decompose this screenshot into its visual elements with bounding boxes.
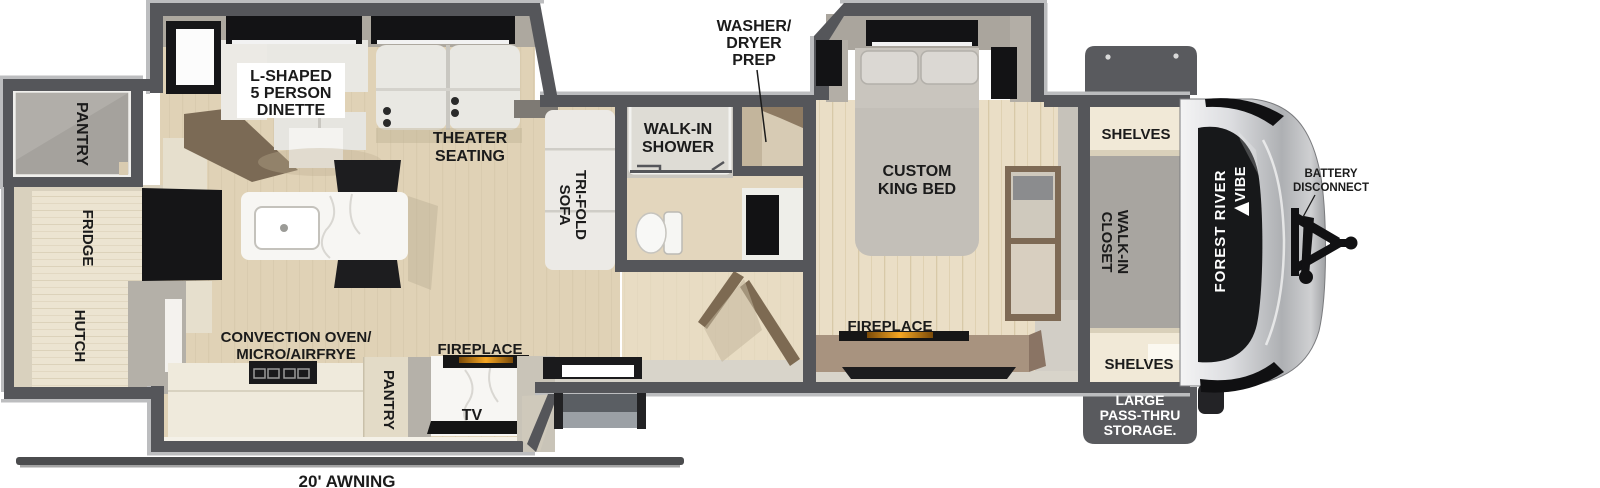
- svg-text:TV: TV: [462, 407, 483, 424]
- svg-text:FIREPLACE: FIREPLACE: [437, 341, 522, 358]
- svg-text:20' AWNING: 20' AWNING: [299, 472, 396, 488]
- svg-text:FIREPLACE: FIREPLACE: [847, 318, 932, 335]
- svg-text:WALK-IN: WALK-IN: [1114, 210, 1131, 274]
- svg-text:SHOWER: SHOWER: [642, 139, 714, 156]
- svg-text:DINETTE: DINETTE: [257, 102, 326, 119]
- svg-text:FRIDGE: FRIDGE: [79, 210, 96, 267]
- svg-text:WASHER/: WASHER/: [717, 18, 792, 35]
- svg-text:SOFA: SOFA: [556, 185, 573, 226]
- svg-text:WALK-IN: WALK-IN: [644, 121, 712, 138]
- svg-text:SEATING: SEATING: [435, 148, 505, 165]
- svg-text:STORAGE.: STORAGE.: [1104, 422, 1177, 438]
- svg-text:LARGE: LARGE: [1116, 392, 1165, 408]
- svg-text:L-SHAPED: L-SHAPED: [250, 68, 332, 85]
- svg-text:CONVECTION OVEN/: CONVECTION OVEN/: [221, 329, 373, 346]
- svg-text:THEATER: THEATER: [433, 130, 508, 147]
- svg-text:PANTRY: PANTRY: [380, 370, 397, 430]
- svg-text:KING BED: KING BED: [878, 181, 956, 198]
- svg-text:VIBE: VIBE: [1233, 166, 1249, 202]
- svg-text:CLOSET: CLOSET: [1098, 212, 1115, 273]
- svg-text:PANTRY: PANTRY: [73, 102, 90, 166]
- svg-text:DISCONNECT: DISCONNECT: [1293, 182, 1369, 194]
- svg-text:CUSTOM: CUSTOM: [882, 163, 951, 180]
- svg-text:MICRO/AIRFRYE: MICRO/AIRFRYE: [236, 346, 355, 363]
- svg-text:BATTERY: BATTERY: [1304, 168, 1357, 180]
- svg-text:TRI-FOLD: TRI-FOLD: [572, 170, 589, 240]
- svg-text:PASS-THRU: PASS-THRU: [1100, 407, 1181, 423]
- svg-text:SHELVES: SHELVES: [1105, 356, 1174, 373]
- svg-text:5 PERSON: 5 PERSON: [251, 85, 332, 102]
- svg-text:SHELVES: SHELVES: [1102, 126, 1171, 143]
- svg-text:DRYER: DRYER: [726, 35, 782, 52]
- svg-text:HUTCH: HUTCH: [71, 310, 88, 363]
- svg-text:PREP: PREP: [732, 52, 776, 69]
- svg-text:FOREST RIVER: FOREST RIVER: [1212, 170, 1229, 293]
